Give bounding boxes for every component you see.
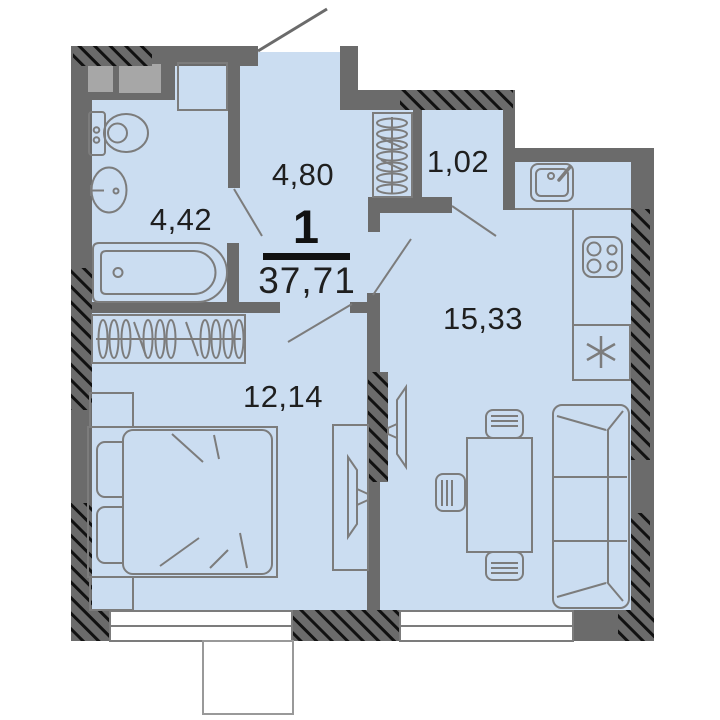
entry-door-swing — [258, 9, 327, 51]
wall-bathroom-hall — [228, 46, 240, 188]
vent-shafts — [88, 64, 161, 93]
vent-shaft-icon — [119, 64, 161, 93]
room-area-label-hallway: 4,80 — [272, 157, 334, 192]
floor-plan: 4,42 4,80 1,02 15,33 12,14 1 37,71 — [0, 0, 720, 720]
wall-entry-block — [340, 46, 358, 110]
wall-bathroom-bottom — [71, 302, 280, 313]
bedroom-window — [110, 611, 292, 641]
total-area-label: 37,71 — [258, 260, 356, 301]
wall-coatrack-right — [413, 110, 422, 203]
entry-threshold — [258, 52, 340, 72]
room-area-label-bathroom: 4,42 — [150, 202, 212, 237]
wall-duct-block — [368, 372, 388, 482]
vent-shaft-icon — [88, 64, 113, 92]
blanket — [123, 430, 272, 574]
living-window — [400, 611, 573, 641]
wall-living-door-stub — [368, 213, 380, 232]
wall-closet-bottom — [368, 197, 452, 213]
total-area-divider — [263, 253, 350, 260]
wall-bathroom-door-side — [227, 243, 239, 302]
room-area-label-bedroom: 12,14 — [243, 379, 323, 414]
room-area-label-kitchen-living: 15,33 — [443, 301, 523, 336]
room-area-label-closet: 1,02 — [427, 144, 489, 179]
wall-bedroom-door-stub — [350, 302, 368, 313]
floor-plan-page: 4,42 4,80 1,02 15,33 12,14 1 37,71 — [0, 0, 720, 720]
balcony — [203, 641, 293, 714]
unit-type-number: 1 — [293, 200, 319, 253]
